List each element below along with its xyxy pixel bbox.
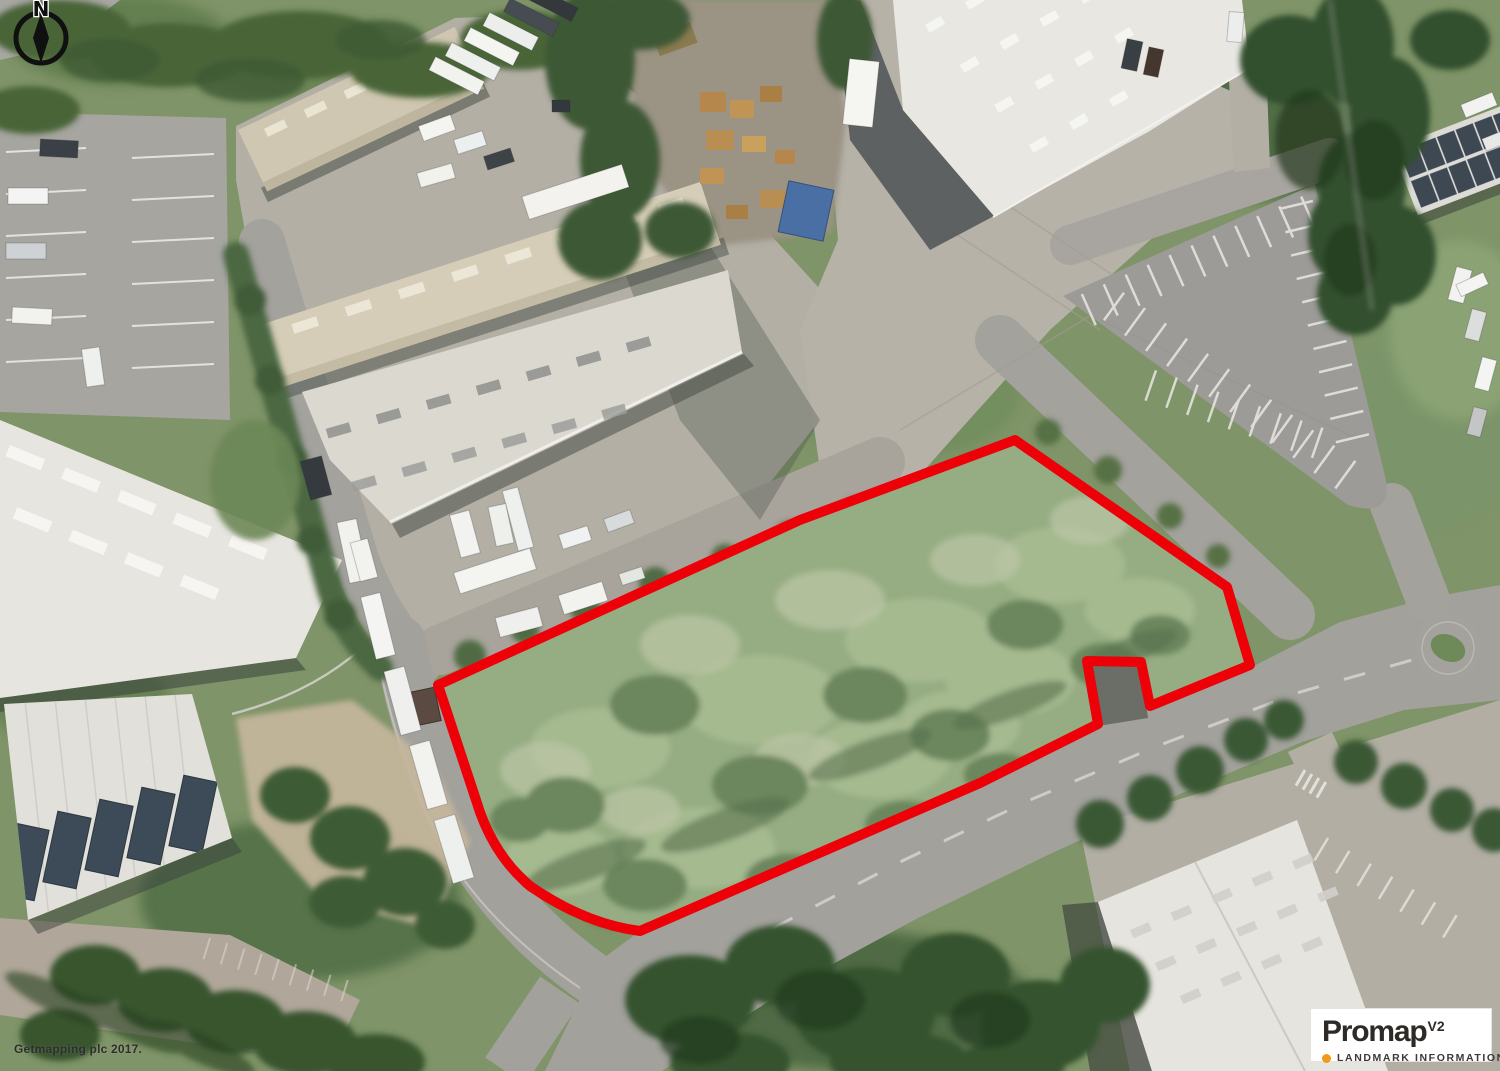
logo-brand: Promap: [1322, 1015, 1427, 1048]
aerial-photo: N: [0, 0, 1500, 1071]
promap-logo: PromapV2 LANDMARK INFORMATION: [1310, 1008, 1492, 1062]
logo-version: V2: [1428, 1018, 1445, 1034]
copyright-text: Getmapping plc 2017.: [14, 1042, 142, 1056]
landmark-dot-icon: [1322, 1054, 1331, 1063]
logo-subtitle: LANDMARK INFORMATION: [1337, 1052, 1500, 1064]
north-label: N: [33, 0, 50, 21]
map-viewport: N Getmapping plc 2017. PromapV2 LANDMARK…: [0, 0, 1500, 1071]
